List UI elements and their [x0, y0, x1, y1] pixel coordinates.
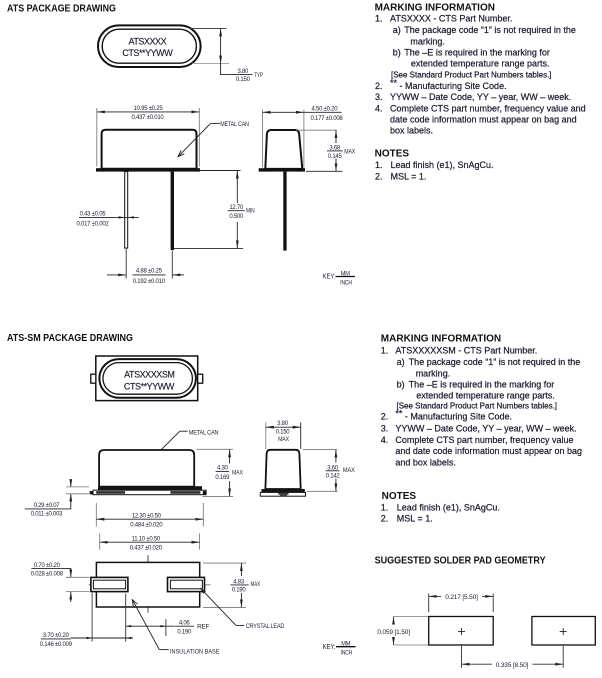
- svg-text:ATSXXXXSM: ATSXXXXSM: [124, 370, 174, 380]
- svg-text:4.: 4.: [375, 103, 383, 113]
- svg-text:0.150: 0.150: [276, 430, 291, 436]
- svg-text:MSL = 1.: MSL = 1.: [391, 171, 427, 181]
- svg-text:MAX: MAX: [344, 150, 355, 156]
- svg-text:extended temperature range par: extended temperature range parts.: [411, 59, 550, 69]
- svg-text:3.: 3.: [381, 424, 389, 434]
- svg-text:[See Standard Product Part Num: [See Standard Product Part Numbers table…: [391, 71, 552, 80]
- svg-text:0.146 ±0.009: 0.146 ±0.009: [40, 642, 73, 648]
- svg-text:ATSXXXX: ATSXXXX: [128, 36, 166, 46]
- svg-text:1.: 1.: [381, 502, 389, 512]
- svg-text:0.017 ±0.002: 0.017 ±0.002: [77, 222, 110, 228]
- svg-text:METAL CAN: METAL CAN: [220, 122, 249, 128]
- svg-text:date code information must app: date code information must appear on bag…: [390, 114, 577, 124]
- svg-text:0.028 ±0.008: 0.028 ±0.008: [31, 571, 64, 577]
- svg-text:4.06: 4.06: [179, 621, 191, 627]
- svg-text:0.142: 0.142: [326, 474, 341, 480]
- svg-text:a): a): [393, 25, 401, 35]
- svg-text:and date code information must: and date code information must appear on…: [395, 446, 582, 456]
- svg-text:0.437 ±0.020: 0.437 ±0.020: [130, 545, 163, 551]
- svg-text:0.43 ±0.05: 0.43 ±0.05: [80, 212, 107, 218]
- svg-text:MARKING INFORMATION: MARKING INFORMATION: [375, 2, 495, 13]
- svg-text:0.169: 0.169: [215, 475, 230, 481]
- svg-text:0.177 ±0.008: 0.177 ±0.008: [311, 116, 344, 122]
- svg-text:NOTES: NOTES: [382, 491, 417, 502]
- svg-text:a): a): [397, 357, 405, 367]
- svg-text:extended temperature range par: extended temperature range parts.: [416, 391, 555, 401]
- svg-text:and box labels.: and box labels.: [395, 458, 456, 468]
- svg-text:marking.: marking.: [416, 368, 451, 378]
- svg-text:[See Standard Product Part Num: [See Standard Product Part Numbers table…: [397, 402, 558, 411]
- svg-text:The –E is required in the mark: The –E is required in the marking for: [404, 47, 550, 57]
- svg-text:12.70: 12.70: [229, 205, 244, 211]
- svg-text:YYWW – Date Code, YY – year, W: YYWW – Date Code, YY – year, WW – week.: [390, 92, 571, 102]
- svg-text:0.484 ±0.020: 0.484 ±0.020: [130, 522, 163, 528]
- svg-text:TYP: TYP: [254, 73, 263, 79]
- svg-text:0.190: 0.190: [232, 587, 247, 593]
- svg-text:The package code “1” is not re: The package code “1” is not required in …: [409, 357, 581, 367]
- svg-text:11.10 ±0.50: 11.10 ±0.50: [132, 537, 161, 543]
- svg-text:4.88 ±0.25: 4.88 ±0.25: [136, 269, 163, 275]
- svg-text:MAX: MAX: [343, 468, 355, 474]
- svg-text:ATSXXXXXSM - CTS Part Number.: ATSXXXXXSM - CTS Part Number.: [395, 346, 537, 356]
- svg-text:NOTES: NOTES: [375, 149, 410, 160]
- svg-text:MM: MM: [341, 271, 350, 277]
- svg-text:INCH: INCH: [341, 650, 353, 656]
- svg-text:CRYSTAL LEAD: CRYSTAL LEAD: [246, 624, 285, 630]
- svg-text:YYWW – Date Code, YY – year, W: YYWW – Date Code, YY – year, WW – week.: [395, 424, 576, 434]
- svg-text:2.: 2.: [381, 412, 389, 422]
- svg-text:The –E is required in the mark: The –E is required in the marking for: [409, 379, 555, 389]
- svg-text:METAL CAN: METAL CAN: [189, 430, 219, 436]
- svg-text:REF: REF: [197, 625, 210, 631]
- svg-text:1.: 1.: [381, 346, 389, 356]
- svg-text:4.30: 4.30: [217, 466, 229, 472]
- svg-text:Complete CTS part number, freq: Complete CTS part number, frequency valu…: [390, 103, 586, 113]
- svg-text:MIN: MIN: [246, 209, 255, 215]
- svg-text:The package code “1” is not re: The package code “1” is not required in …: [404, 25, 576, 35]
- svg-text:0.190: 0.190: [177, 630, 192, 636]
- svg-text:1.: 1.: [375, 160, 383, 170]
- svg-text:0.192 ±0.010: 0.192 ±0.010: [133, 279, 166, 285]
- svg-text:2.: 2.: [375, 171, 383, 181]
- svg-text:Lead finish (e1), SnAgCu.: Lead finish (e1), SnAgCu.: [397, 502, 500, 512]
- svg-text:MSL = 1.: MSL = 1.: [397, 514, 433, 524]
- svg-text:INSULATION BASE: INSULATION BASE: [170, 648, 220, 655]
- svg-text:MAX: MAX: [251, 582, 261, 588]
- svg-text:marking.: marking.: [410, 36, 445, 46]
- svg-text:MARKING INFORMATION: MARKING INFORMATION: [381, 334, 501, 345]
- svg-text:CTS**YYWW: CTS**YYWW: [122, 48, 173, 58]
- svg-text:3.68: 3.68: [329, 145, 341, 151]
- svg-text:12.30 ±0.50: 12.30 ±0.50: [132, 513, 162, 519]
- svg-text:0.335 [8.50]: 0.335 [8.50]: [496, 662, 529, 669]
- svg-text:MAX: MAX: [232, 470, 243, 476]
- svg-text:3.80: 3.80: [237, 69, 249, 75]
- svg-text:ATS PACKAGE DRAWING: ATS PACKAGE DRAWING: [7, 3, 116, 14]
- svg-text:** - Manufacturing Site Code.: ** - Manufacturing Site Code.: [395, 409, 512, 422]
- svg-text:ATSXXXX - CTS Part Number.: ATSXXXX - CTS Part Number.: [390, 14, 512, 24]
- svg-text:4.50 ±0.20: 4.50 ±0.20: [312, 107, 339, 113]
- svg-text:0.500: 0.500: [229, 214, 244, 220]
- svg-text:0.437 ±0.010: 0.437 ±0.010: [132, 115, 165, 121]
- svg-text:b): b): [397, 379, 405, 389]
- svg-text:b): b): [393, 47, 401, 57]
- svg-text:ATS-SM PACKAGE DRAWING: ATS-SM PACKAGE DRAWING: [7, 333, 133, 344]
- svg-text:0.011 ±0.003: 0.011 ±0.003: [31, 512, 63, 518]
- svg-text:MAX: MAX: [278, 437, 289, 443]
- svg-text:0.29 ±0.07: 0.29 ±0.07: [34, 503, 61, 509]
- svg-text:2.: 2.: [375, 81, 383, 91]
- svg-text:KEY:: KEY:: [323, 273, 336, 280]
- svg-text:** - Manufacturing Site Code.: ** - Manufacturing Site Code.: [390, 78, 507, 91]
- svg-text:3.80: 3.80: [277, 421, 289, 427]
- svg-text:KEY:: KEY:: [323, 644, 336, 651]
- svg-text:0.217 [5.50]: 0.217 [5.50]: [445, 594, 478, 601]
- svg-text:3.: 3.: [375, 92, 383, 102]
- svg-text:MM: MM: [341, 642, 350, 648]
- svg-text:3.70 ±0.20: 3.70 ±0.20: [43, 633, 70, 639]
- svg-text:Complete CTS part number, freq: Complete CTS part number, frequency valu…: [395, 435, 573, 445]
- svg-text:SUGGESTED SOLDER PAD GEOMETRY: SUGGESTED SOLDER PAD GEOMETRY: [375, 555, 546, 566]
- svg-text:0.150: 0.150: [236, 77, 251, 83]
- svg-text:INCH: INCH: [340, 280, 352, 286]
- svg-text:4.: 4.: [381, 435, 389, 445]
- svg-text:Lead finish (e1), SnAgCu.: Lead finish (e1), SnAgCu.: [391, 160, 494, 170]
- svg-text:10.95 ±0.25: 10.95 ±0.25: [134, 106, 164, 112]
- svg-text:1.: 1.: [375, 14, 383, 24]
- svg-text:CTS**YYWW: CTS**YYWW: [124, 381, 175, 391]
- svg-text:box labels.: box labels.: [390, 125, 433, 135]
- svg-text:0.70 ±0.20: 0.70 ±0.20: [34, 563, 61, 569]
- svg-text:0.145: 0.145: [328, 154, 343, 160]
- svg-text:0.059 [1.50]: 0.059 [1.50]: [377, 629, 410, 636]
- svg-text:2.: 2.: [381, 514, 389, 524]
